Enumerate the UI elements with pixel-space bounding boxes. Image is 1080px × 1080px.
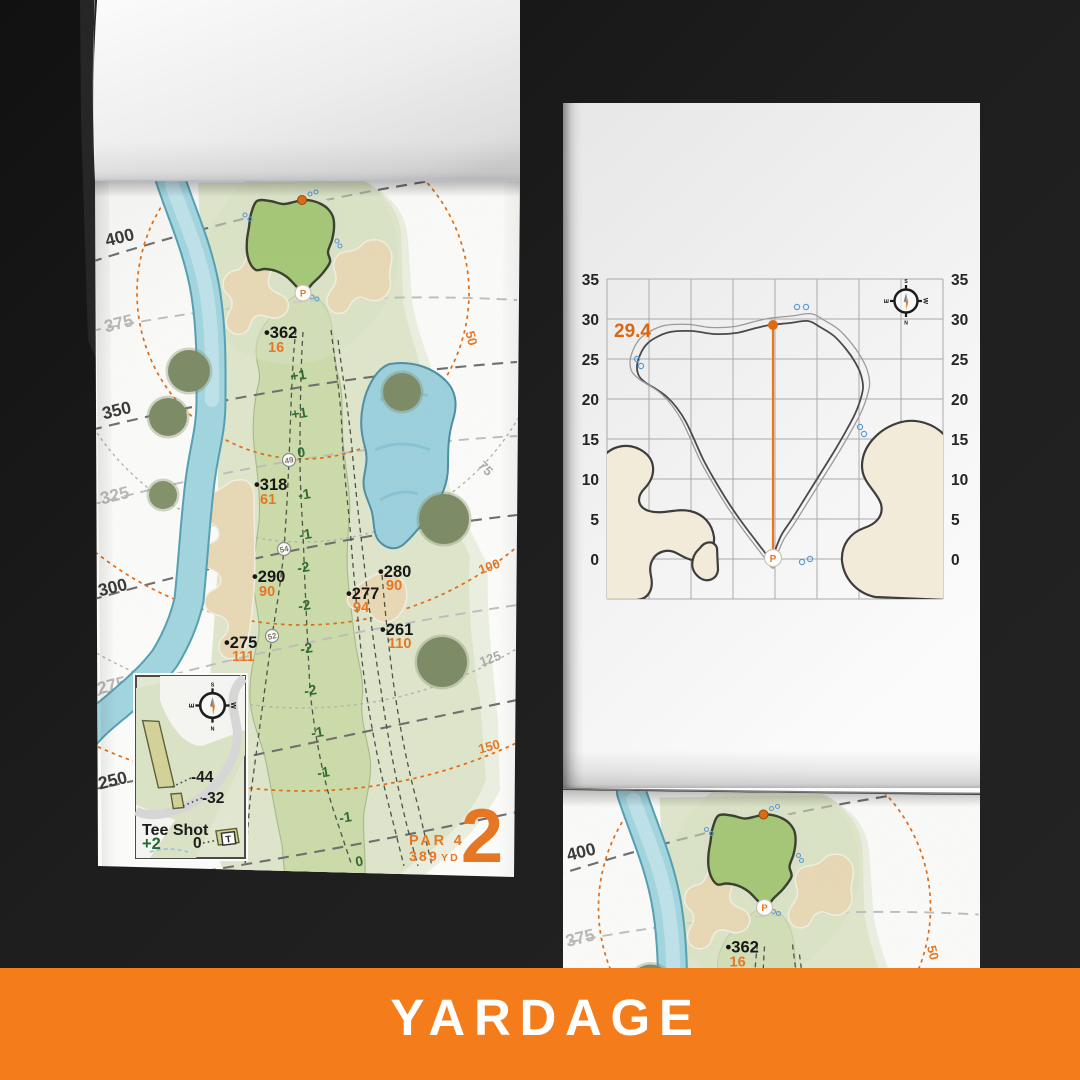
svg-text:P: P <box>770 554 777 565</box>
svg-text:0: 0 <box>590 552 599 569</box>
svg-text:20: 20 <box>951 392 968 409</box>
svg-text:YARDAGE: YARDAGE <box>390 989 701 1046</box>
svg-text:0: 0 <box>951 552 960 569</box>
svg-text:10: 10 <box>951 472 968 489</box>
svg-text:10: 10 <box>582 472 599 489</box>
svg-text:29.4: 29.4 <box>614 321 651 342</box>
svg-text:5: 5 <box>951 512 960 529</box>
svg-text:15: 15 <box>951 432 969 449</box>
svg-text:5: 5 <box>590 512 599 529</box>
svg-text:30: 30 <box>582 312 599 329</box>
svg-text:15: 15 <box>582 432 600 449</box>
svg-text:30: 30 <box>951 312 968 329</box>
svg-text:20: 20 <box>582 392 599 409</box>
svg-text:25: 25 <box>951 352 969 369</box>
svg-text:25: 25 <box>582 352 600 369</box>
svg-text:35: 35 <box>951 272 969 289</box>
svg-text:35: 35 <box>582 272 600 289</box>
